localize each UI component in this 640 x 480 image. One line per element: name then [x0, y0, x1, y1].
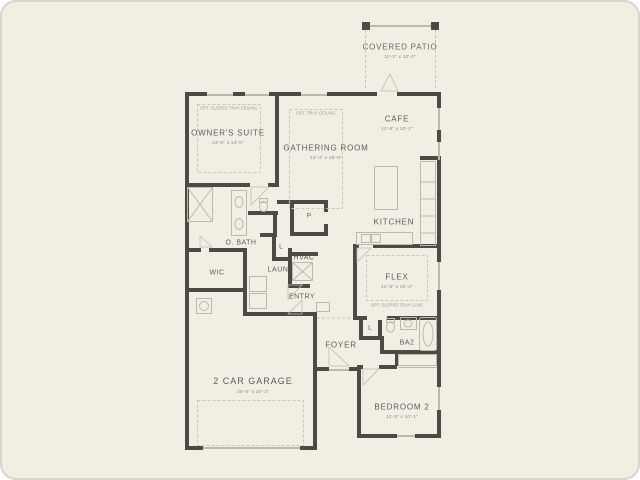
- room-label-wic: WIC: [209, 270, 224, 277]
- room-label-gathering-room: GATHERING ROOM: [283, 144, 368, 153]
- note-gathering-room: OPT. TRAY CEILING: [296, 112, 335, 116]
- room-label-cafe: CAFE: [385, 115, 410, 124]
- room-label-foyer: FOYER: [325, 341, 357, 350]
- room-dim-garage: 20'-0" x 20'-3": [237, 390, 269, 395]
- room-dim-covered-patio: 11'-1" x 10'-0": [384, 55, 416, 60]
- room-label-bath2: BA2: [400, 340, 415, 347]
- room-dim-owners-suite: 13'-0" x 14'-0": [212, 141, 244, 146]
- room-label-linen-ba2: L: [368, 325, 372, 332]
- room-label-hvac: HVAC: [294, 255, 315, 262]
- fixtures: [188, 162, 437, 368]
- room-label-pantry: P: [307, 213, 312, 220]
- room-label-owners-bath: O. BATH: [226, 240, 257, 247]
- note-owners-suite: OPT. SLOPED TRAY CEILING: [200, 107, 257, 111]
- room-dim-cafe: 12'-8" x 10'-2": [381, 127, 413, 132]
- room-label-linen-hall: L: [279, 244, 283, 251]
- room-dim-flex: 12'-6" x 10'-2": [381, 285, 413, 290]
- floorplan-card: COVERED PATIO 11'-1" x 10'-0" OPT. SLOPE…: [0, 0, 640, 480]
- floorplan-geometry: [0, 0, 640, 480]
- room-label-bedroom2: BEDROOM 2: [374, 403, 429, 412]
- room-label-kitchen: KITCHEN: [374, 218, 415, 227]
- room-label-garage: 2 CAR GARAGE: [213, 376, 293, 386]
- room-label-owners-suite: OWNER'S SUITE: [191, 129, 265, 138]
- room-label-flex: FLEX: [385, 273, 408, 282]
- room-dim-gathering-room: 12'-4" x 18'-0": [310, 156, 342, 161]
- room-label-laundry: LAUN: [268, 267, 289, 274]
- note-flex: OPT. SLOPED TRAY CLNG: [371, 304, 423, 308]
- room-label-covered-patio: COVERED PATIO: [362, 43, 437, 52]
- room-dim-bedroom2: 11'-9" x 10'-1": [386, 415, 418, 420]
- room-label-entry: ENTRY: [289, 294, 315, 301]
